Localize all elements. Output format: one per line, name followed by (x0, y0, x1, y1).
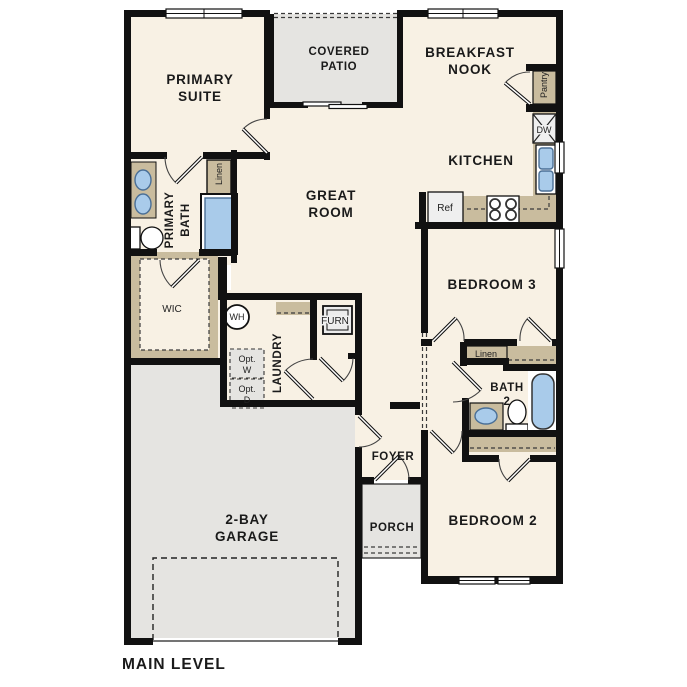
kitchen-label: KITCHEN (448, 153, 514, 168)
opt-dryer-label-1: Opt. (238, 384, 255, 394)
water-heater-label: WH (230, 312, 245, 322)
bedroom3-label: BEDROOM 3 (448, 277, 537, 292)
kitchen-sink-basin-1 (539, 148, 553, 169)
garage-label-1: 2-BAY (225, 512, 268, 527)
porch-floor (362, 484, 421, 558)
covered-patio-label-1: COVERED (308, 46, 369, 58)
bedroom2-label: BEDROOM 2 (449, 513, 538, 528)
primary-sink-2 (135, 194, 151, 214)
bedroom2-closet-shelf (469, 437, 556, 452)
pantry-label: Pantry (539, 71, 549, 98)
foyer-label: FOYER (372, 451, 415, 463)
kitchen-sink-basin-2 (539, 171, 553, 191)
great-room-label-1: GREAT (306, 188, 356, 203)
furnace-label: FURN (321, 316, 349, 327)
primary-linen-label: Linen (214, 163, 224, 185)
bath2-label-2: 2 (504, 396, 511, 408)
bath2-sink (475, 408, 497, 424)
laundry-label: LAUNDRY (272, 333, 284, 393)
floor-plan-svg: PRIMARY SUITE COVERED PATIO BREAKFAST NO… (0, 0, 687, 687)
porch-label: PORCH (370, 522, 415, 534)
breakfast-nook-label-1: BREAKFAST (425, 45, 515, 60)
primary-toilet-tank (130, 227, 140, 249)
wic-label: WIC (162, 304, 181, 315)
bath2-linen-label: Linen (475, 349, 497, 359)
primary-bath-label-2: BATH (180, 203, 192, 237)
burner-2 (506, 199, 516, 209)
burner-4 (506, 210, 516, 220)
floor-plan-canvas: PRIMARY SUITE COVERED PATIO BREAKFAST NO… (0, 0, 687, 687)
burner-1 (490, 199, 500, 209)
primary-toilet-bowl (141, 227, 163, 249)
refrigerator-label: Ref (437, 203, 453, 214)
burner-3 (490, 210, 500, 220)
covered-patio-floor (271, 14, 400, 105)
primary-suite-label-2: SUITE (178, 89, 222, 104)
bedroom3-closet-shelf (507, 346, 556, 364)
opt-washer-label-1: Opt. (238, 354, 255, 364)
garage-label-2: GARAGE (215, 529, 279, 544)
great-room-label-2: ROOM (308, 205, 353, 220)
plan-title: MAIN LEVEL (122, 656, 226, 673)
primary-bath-label-1: PRIMARY (164, 192, 176, 249)
primary-suite-label-1: PRIMARY (166, 72, 233, 87)
bath2-label-1: BATH (490, 382, 524, 394)
bath2-toilet-bowl (508, 400, 526, 424)
primary-sink-1 (135, 170, 151, 190)
opt-washer-label-2: W (243, 365, 252, 375)
dishwasher-label: DW (537, 125, 552, 135)
breakfast-nook-label-2: NOOK (448, 62, 492, 77)
bath2-tub (532, 374, 554, 429)
opt-dryer-label-2: D (244, 395, 251, 405)
primary-shower-pan (205, 198, 233, 250)
covered-patio-label-2: PATIO (321, 61, 357, 73)
patio-slider-panel-2 (329, 105, 367, 109)
